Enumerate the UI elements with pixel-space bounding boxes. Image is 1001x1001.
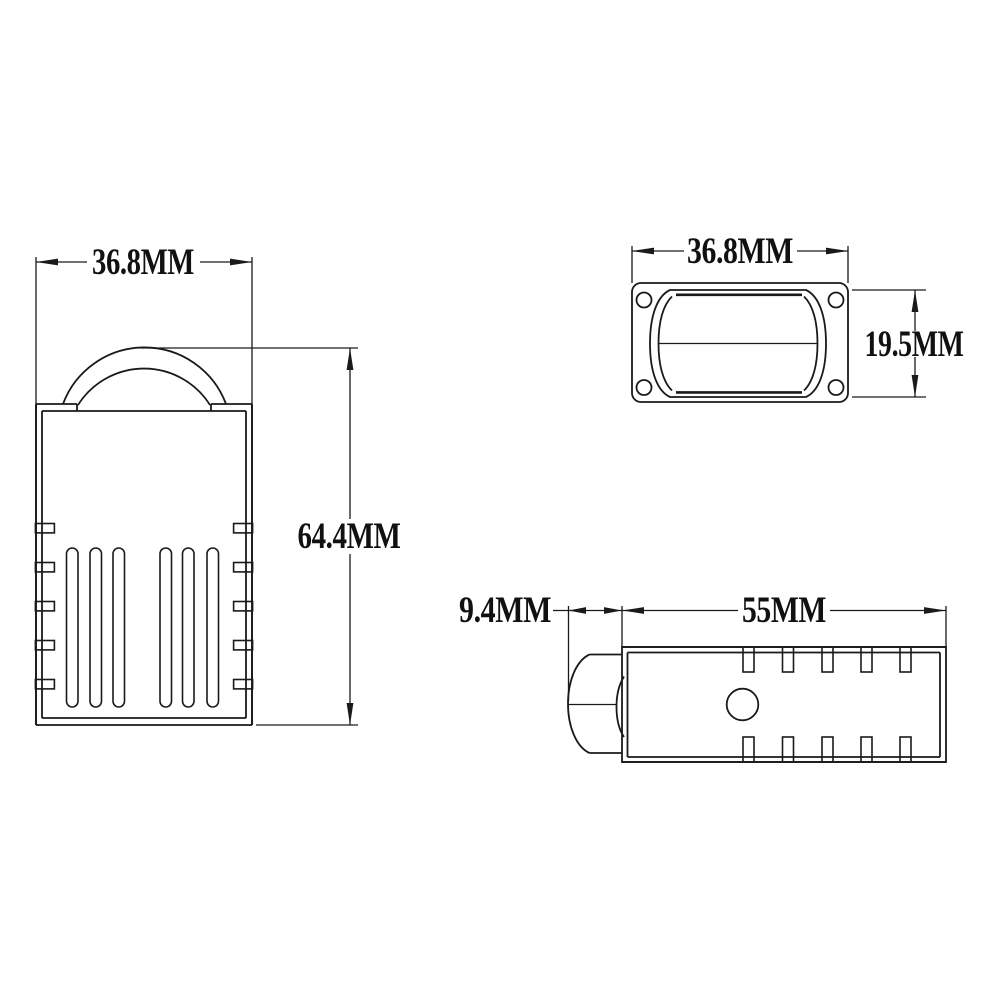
vent-slot [183,548,195,707]
front-view: 36.8MM 64.4MM [35,242,400,725]
mounting-plate-outline [632,283,848,402]
vent-slot [90,548,102,707]
tab [35,524,54,533]
tab [234,680,253,689]
side-view: 9.4MM 55MM [459,590,946,762]
front-width-dimension: 36.8MM [36,242,252,404]
dimension-arrow-icon [924,607,946,614]
mounting-hole [829,380,844,395]
notch [900,647,911,672]
top-height-label: 19.5MM [865,324,964,365]
tab [234,524,253,533]
dimension-arrow-icon [347,348,354,370]
side-view-notches [743,647,911,762]
dimension-arrow-icon [36,259,58,266]
mounting-hole [637,380,652,395]
tab [234,602,253,611]
extension-lines [569,606,623,701]
dimension-arrow-icon [347,703,354,725]
dimension-arrow-icon [912,290,919,312]
tab [35,641,54,650]
notch [822,647,833,672]
dimension-arrow-icon [569,607,587,614]
dimension-arrow-icon [604,607,622,614]
vent-slot [67,548,79,707]
front-view-arch-handle [63,347,226,405]
front-height-label: 64.4MM [298,516,401,557]
arch-inner-arc [78,369,210,405]
dimension-arrow-icon [622,607,644,614]
technical-drawing-canvas: 36.8MM 64.4MM [0,0,1001,1001]
side-length-label: 55MM [742,590,826,631]
vent-slot [207,548,219,707]
tab [35,563,54,572]
vent-slot [160,548,172,707]
arch-outer-arc [63,347,226,404]
tab [234,563,253,572]
side-hole [727,689,759,721]
tab [35,680,54,689]
bottom-edges [36,718,252,725]
notch [783,737,794,762]
front-width-label: 36.8MM [92,242,194,283]
notch [822,737,833,762]
notch [861,647,872,672]
notch [900,737,911,762]
top-width-label: 36.8MM [687,231,793,272]
front-view-vent-slots [67,548,219,707]
front-height-dimension: 64.4MM [140,348,401,725]
dimension-arrow-icon [230,259,252,266]
dimension-arrow-icon [632,248,654,255]
top-height-dimension: 19.5MM [852,290,964,397]
mounting-hole [637,293,652,308]
outline-overdraw [36,404,946,762]
tab [35,602,54,611]
side-cap-label: 9.4MM [459,590,551,631]
top-view-dome-outline [650,290,826,397]
notch [783,647,794,672]
top-face-edge [36,404,252,411]
side-cap-dimension: 9.4MM [459,590,622,701]
mounting-hole [829,293,844,308]
dimension-arrow-icon [912,375,919,397]
top-view-plate [632,283,848,402]
dimension-arrow-icon [826,248,848,255]
notch [743,647,754,672]
cap-outer-arc [568,655,590,754]
side-length-dimension: 55MM [622,590,946,647]
side-view-handle-cap [568,655,624,754]
top-view: 36.8MM 19.5MM [632,231,964,402]
notch [743,737,754,762]
tab [234,641,253,650]
notch [861,737,872,762]
vent-slot [113,548,125,707]
top-width-dimension: 36.8MM [632,231,848,283]
three-view-dimension-drawing: 36.8MM 64.4MM [0,0,1001,1001]
